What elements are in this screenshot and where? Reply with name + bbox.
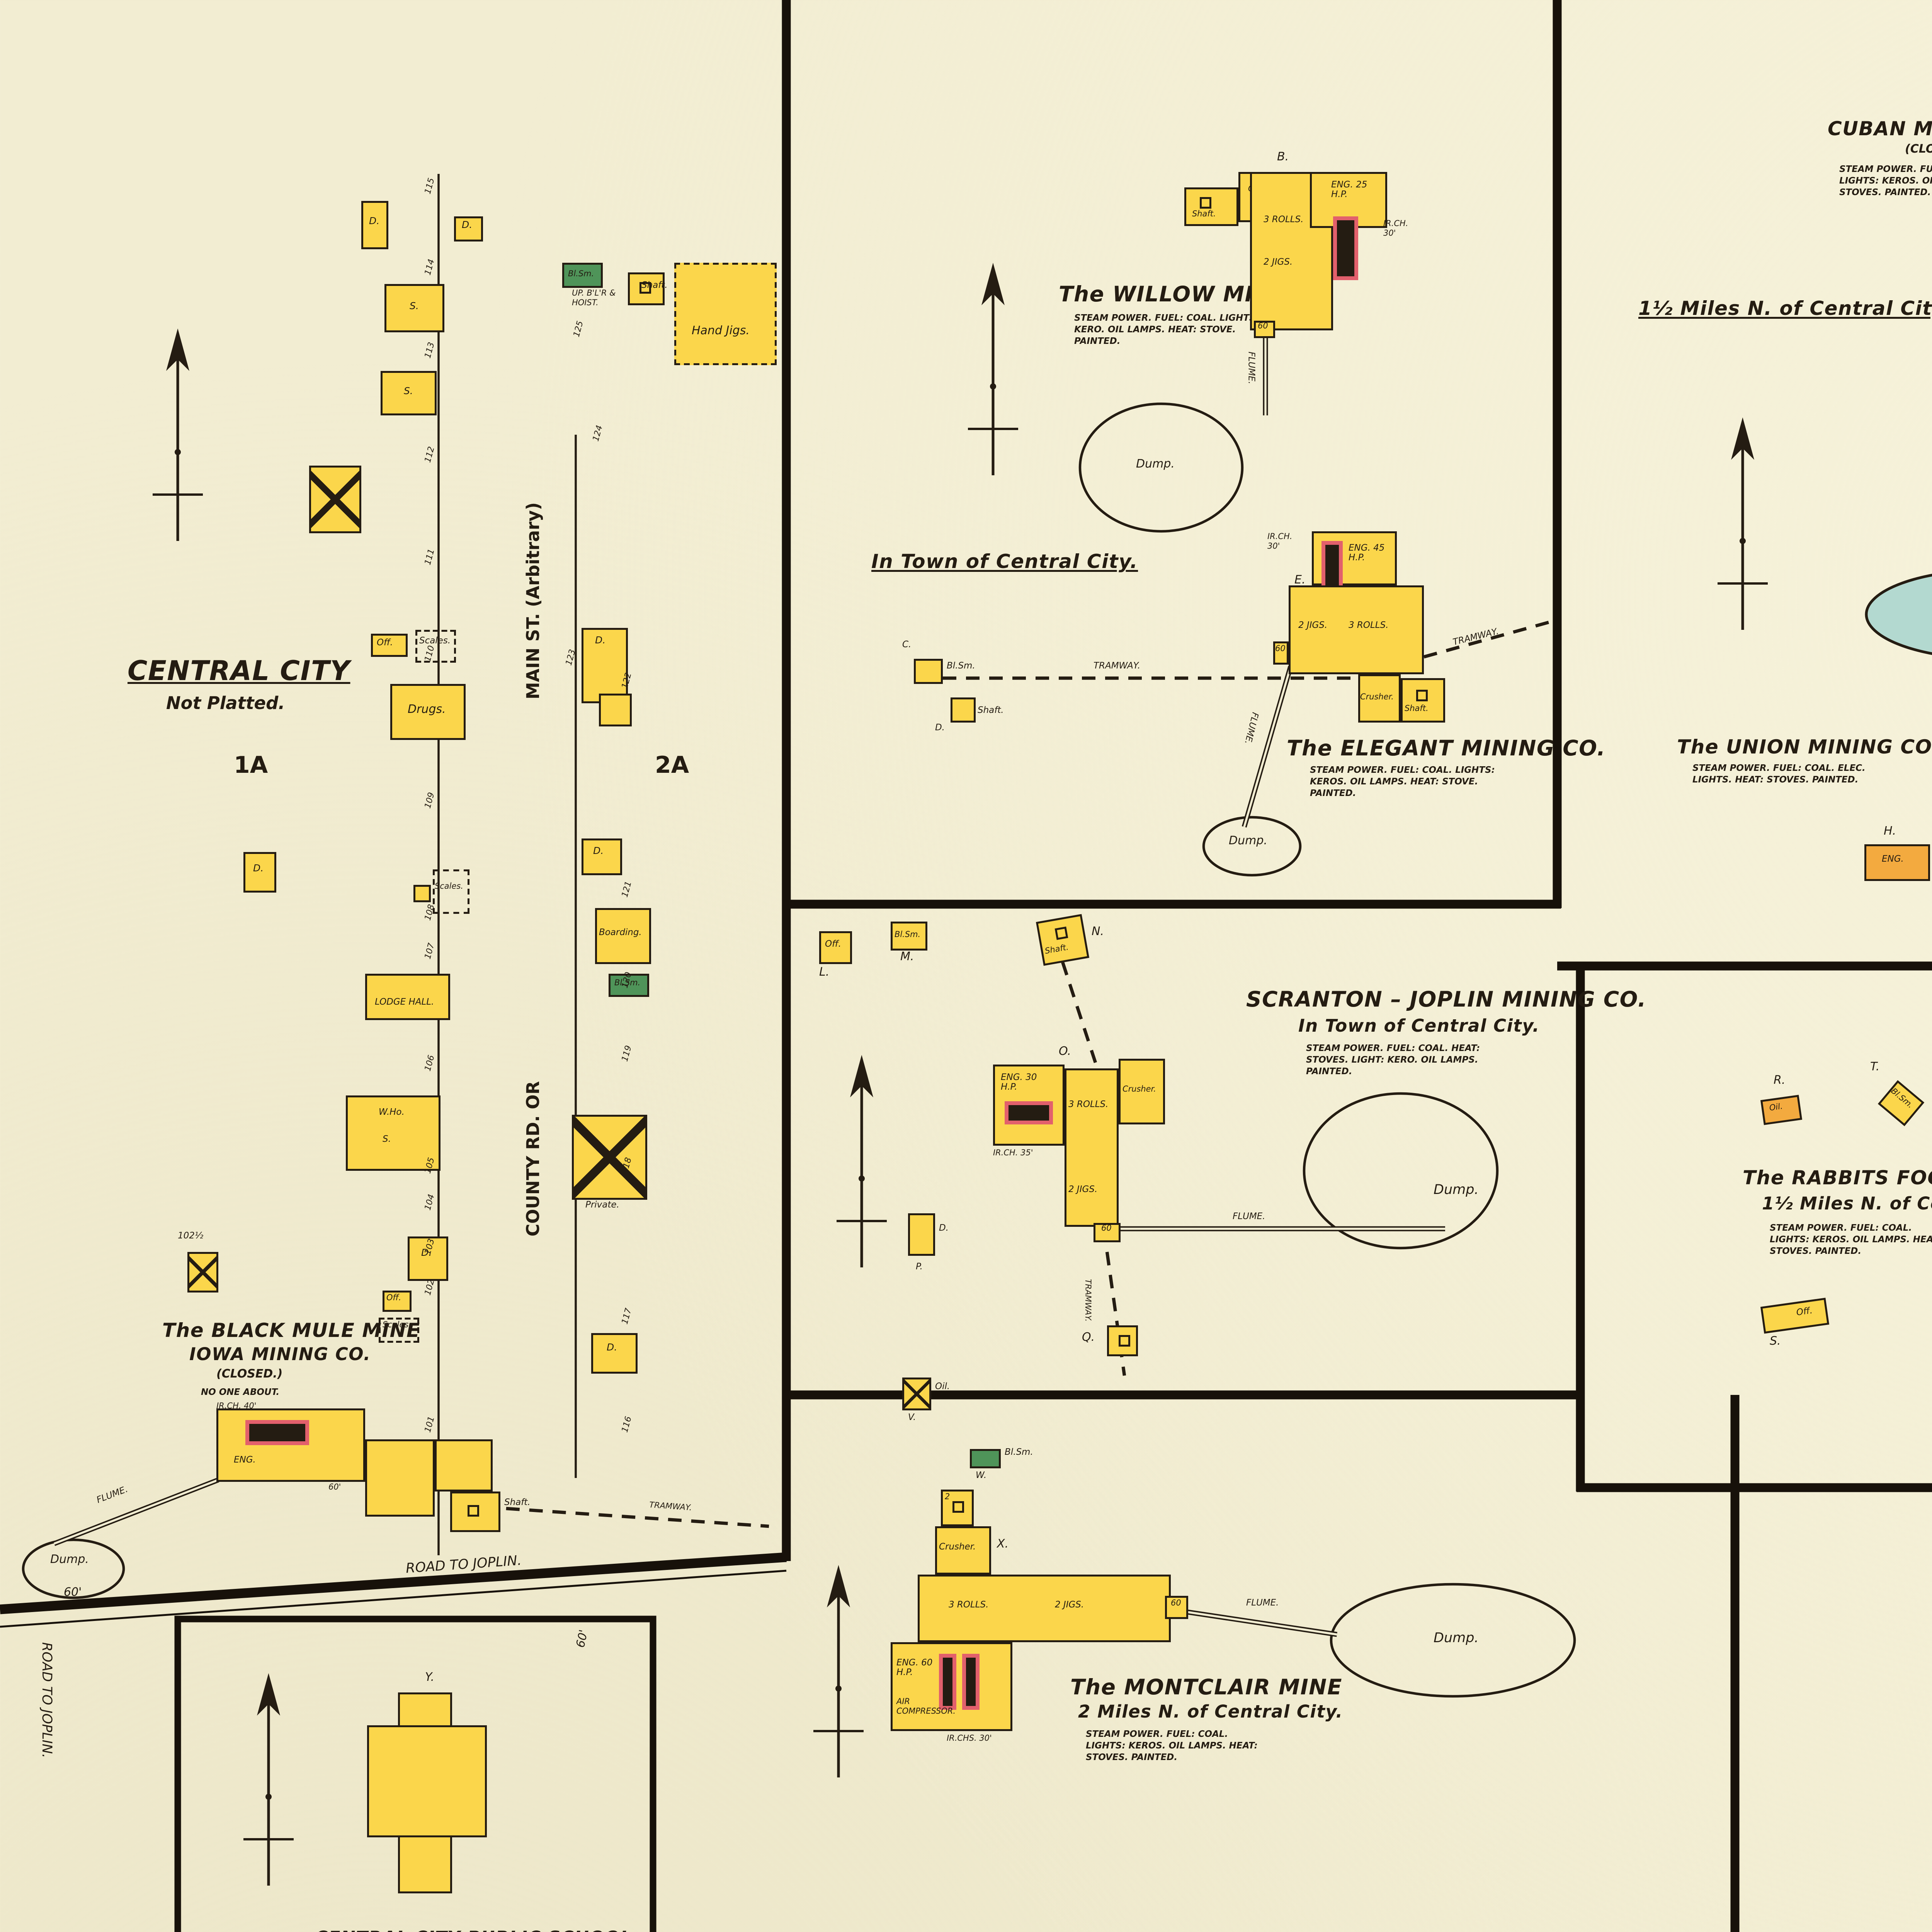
- sanborn-sheet: 32 MAY 1900 JOPLIN MO. NOTE ;- THE MININ…: [0, 0, 1932, 1932]
- map-sheet: 32 MAY 1900 JOPLIN MO. NOTE ;- THE MININ…: [0, 0, 1932, 1932]
